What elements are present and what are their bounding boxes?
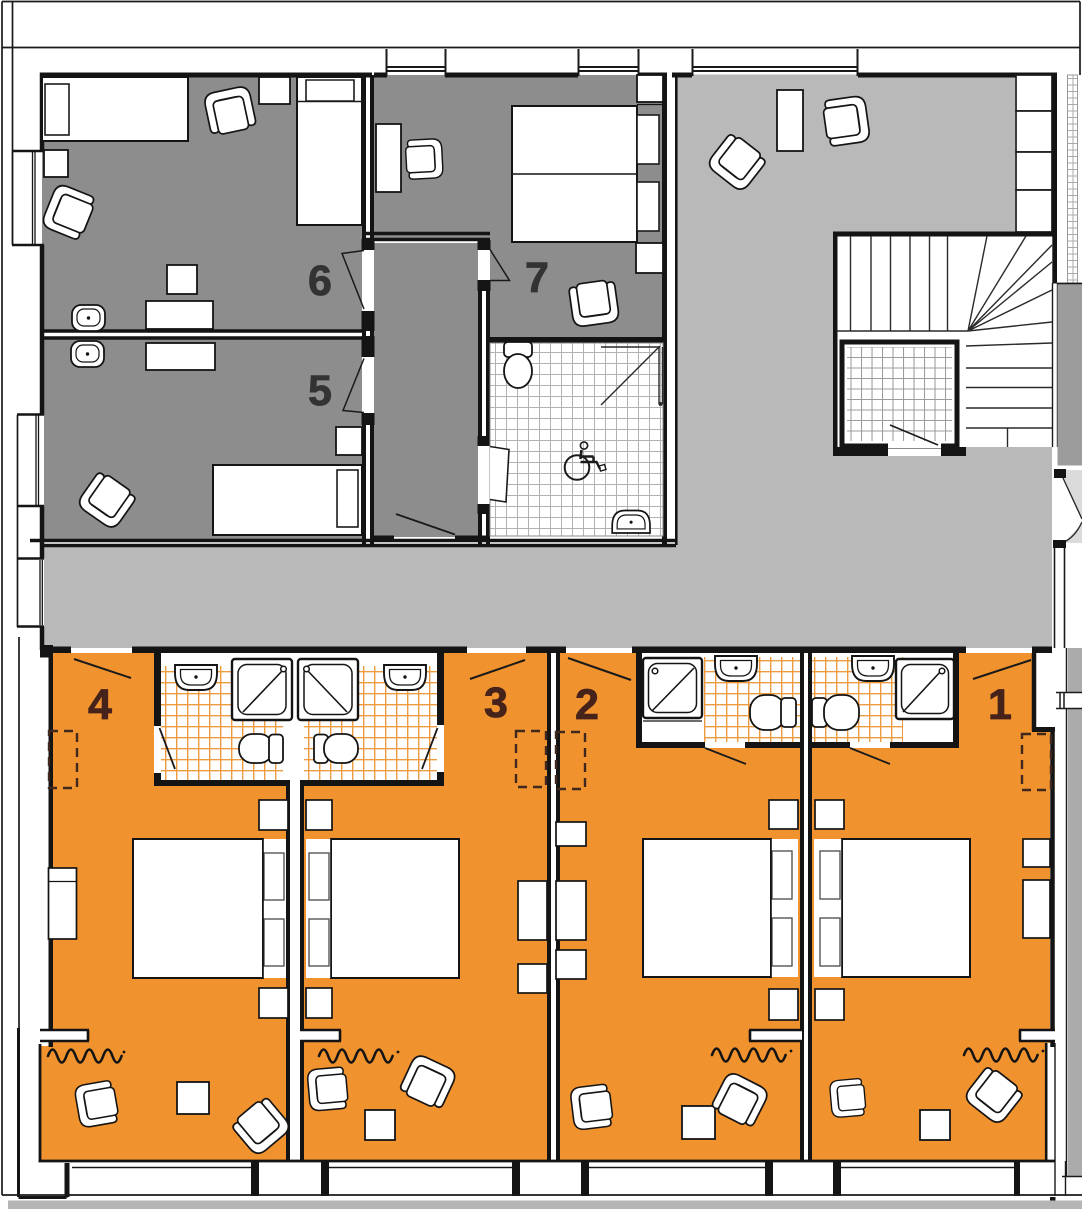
svg-text:3: 3 [484, 679, 508, 727]
svg-text:5: 5 [308, 367, 332, 415]
svg-text:6: 6 [308, 257, 332, 305]
svg-text:2: 2 [575, 681, 599, 729]
svg-text:1: 1 [988, 681, 1012, 729]
svg-text:4: 4 [88, 681, 112, 729]
svg-text:7: 7 [525, 254, 549, 302]
